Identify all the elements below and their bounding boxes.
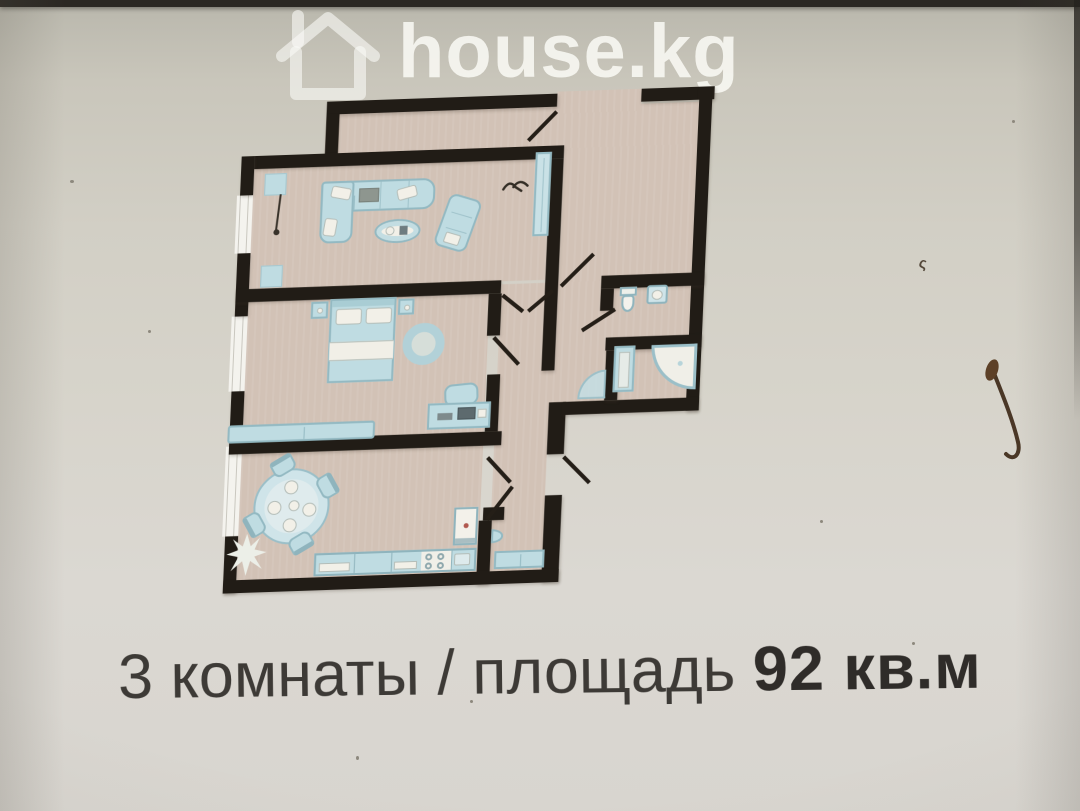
caption: 3 комнаты / площадь 92 кв.м: [118, 631, 979, 714]
hall-cabinet-icon: [494, 549, 545, 569]
monitor-icon: [457, 407, 476, 420]
nightstand-icon: [398, 298, 415, 315]
wall: [325, 114, 340, 156]
stove-icon: [421, 551, 453, 571]
bath-cabinet-icon: [612, 346, 635, 393]
bird-mark-icon: [501, 176, 530, 193]
keyboard-icon: [437, 413, 452, 421]
wall-stain: ς: [918, 254, 929, 272]
floorplan: [202, 82, 720, 604]
caption-prefix: 3 комнаты / площадь: [118, 635, 754, 713]
window-icon: [228, 316, 247, 392]
watermark-brand: house.kg: [398, 8, 740, 95]
hall-floor: [557, 89, 642, 114]
wall: [487, 293, 502, 335]
photo-right-edge: [1074, 0, 1080, 420]
door-swing-icon: [562, 455, 591, 484]
desk-icon: [427, 402, 491, 430]
decor: [399, 226, 407, 235]
wall: [235, 253, 251, 316]
house-outline-icon: [272, 2, 384, 106]
pillow: [365, 307, 392, 324]
pillow: [335, 308, 362, 325]
fridge-icon: [453, 507, 479, 546]
sink-icon: [451, 550, 475, 570]
wall-stain: [978, 358, 1038, 478]
window-icon: [235, 195, 254, 254]
nightstand-icon: [311, 301, 329, 319]
double-bed-icon: [327, 297, 397, 383]
corner-unit: [264, 173, 287, 196]
corner-unit: [260, 265, 283, 288]
sofa-tray: [359, 188, 380, 203]
blanket: [329, 340, 394, 361]
caption-area: 92 кв.м: [752, 632, 982, 705]
washbasin-icon: [646, 285, 668, 305]
wall: [240, 156, 255, 195]
